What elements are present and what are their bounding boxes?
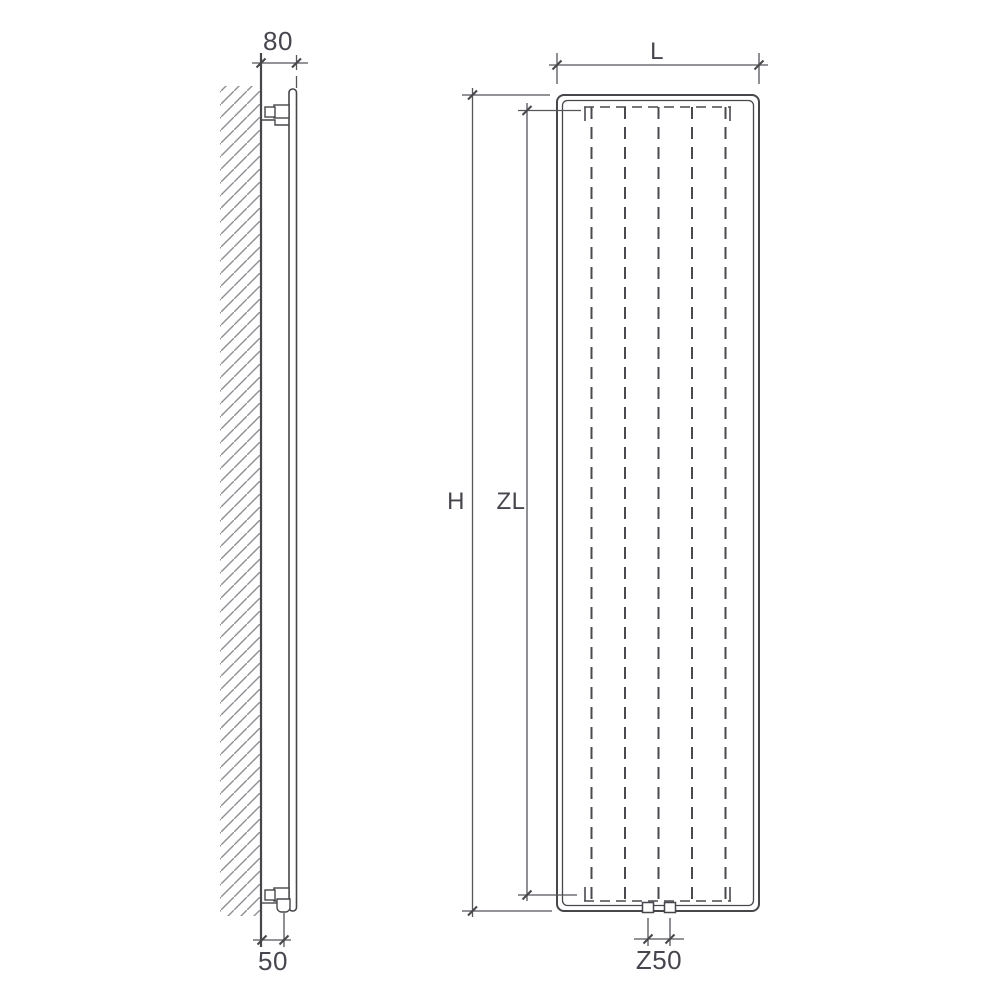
bracket-arm xyxy=(274,105,289,118)
dimension-Z50: Z50 xyxy=(634,918,684,975)
radiator-technical-drawing: 80 50 xyxy=(0,0,1000,1000)
front-view: L H ZL Z50 xyxy=(447,38,768,975)
bracket-block xyxy=(265,890,275,900)
connection-offset-label: 50 xyxy=(258,946,288,976)
height-dimension-label: H xyxy=(447,488,465,515)
axial-length-dimension-label: ZL xyxy=(496,488,525,515)
port-left xyxy=(643,903,654,913)
port-right xyxy=(665,903,676,913)
top-bracket xyxy=(261,105,289,125)
bracket-hook xyxy=(261,120,289,125)
side-view: 80 50 xyxy=(220,26,308,976)
width-dimension-label: L xyxy=(650,38,664,65)
bracket-block xyxy=(265,107,275,117)
dimension-L: L xyxy=(549,38,768,84)
radiator-side-profile xyxy=(289,89,297,911)
wall-hatch xyxy=(220,86,261,916)
depth-dimension-label: 80 xyxy=(263,26,293,56)
dimension-50: 50 xyxy=(253,913,291,976)
connection-spacing-label: Z50 xyxy=(636,945,682,975)
bottom-bracket xyxy=(261,888,290,912)
drawing-canvas: 80 50 xyxy=(0,0,1000,1000)
pipe-connection xyxy=(277,899,290,912)
